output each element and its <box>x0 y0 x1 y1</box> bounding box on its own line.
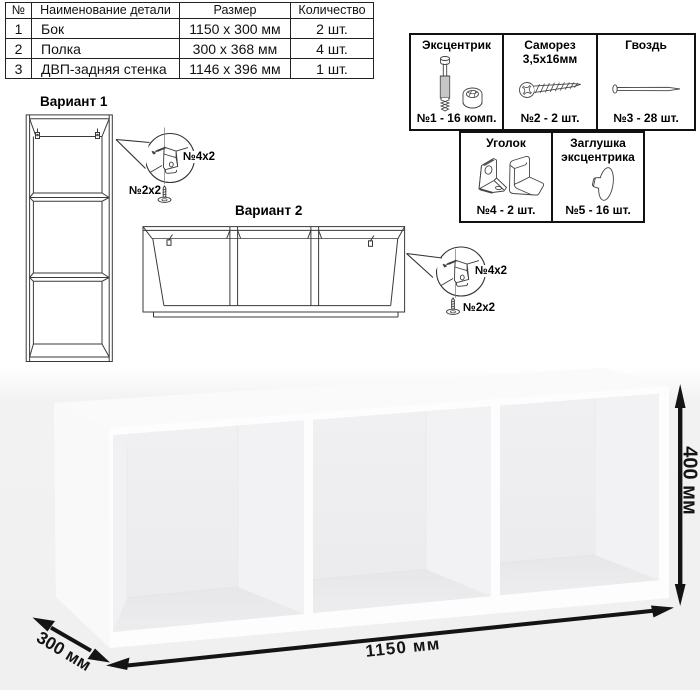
svg-text:400 мм: 400 мм <box>679 446 700 515</box>
